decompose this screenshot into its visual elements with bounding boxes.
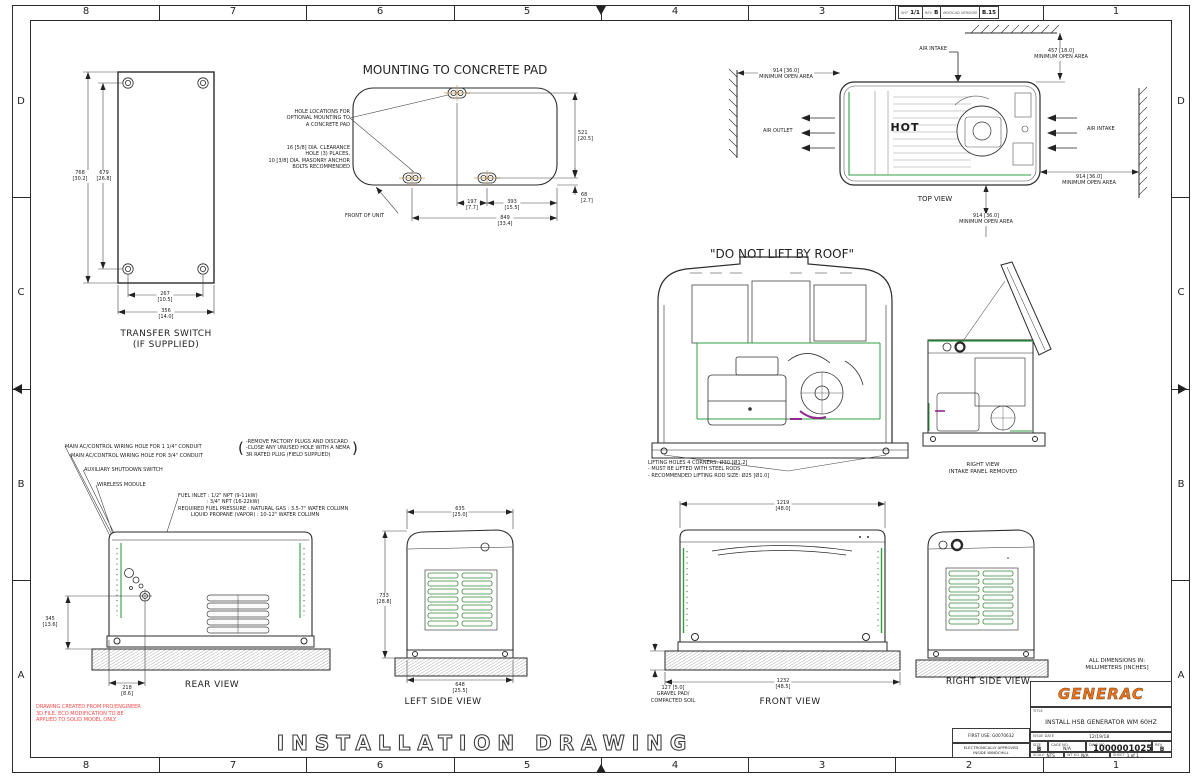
- plug-note-group: ( -REMOVE FACTORY PLUGS AND DISCARD -CLO…: [238, 439, 358, 458]
- all-dimensions-note: ALL DIMENSIONS IN: MILLIMETERS [INCHES]: [1085, 658, 1148, 672]
- issue-date-cell: ISSUE DATE 12/19/18: [1030, 732, 1172, 741]
- zone-number: 5: [524, 761, 530, 771]
- scale-label: SCALE: [1033, 753, 1045, 757]
- interior-panels: [692, 281, 866, 343]
- zone-number: 4: [672, 761, 678, 771]
- center-mark-bottom: [596, 764, 606, 773]
- dim-218: 218 [8.6]: [120, 685, 134, 698]
- center-mark-top: [596, 6, 606, 15]
- logo-cell: GENERAC: [1030, 681, 1172, 707]
- zone-letter: C: [1178, 288, 1185, 298]
- zone-letter: C: [18, 288, 25, 298]
- approved-box: ELECTRONICALLY APPROVED INSIDE WINDCHILL: [952, 743, 1030, 758]
- housing: [680, 530, 885, 642]
- lid-support: [963, 281, 1005, 341]
- zone-letter: D: [1177, 97, 1185, 107]
- sheet-value: 1 of 1: [1127, 753, 1139, 758]
- rev-strip-sheet: SHT1/1: [899, 7, 923, 18]
- zone-number: 3: [819, 7, 825, 17]
- gravel-pad: [665, 651, 900, 670]
- rev-strip-version-label: MODCAD VERSION: [941, 7, 980, 18]
- version-value: B.15: [982, 10, 996, 16]
- zone-tick: [895, 758, 896, 773]
- clearance-hole-callout: 16 [5/8] DIA. CLEARANCE HOLE (3) PLACES,…: [268, 145, 350, 170]
- air-intake-right-label: AIR INTAKE: [1087, 126, 1115, 132]
- zone-letter: A: [18, 671, 25, 681]
- zone-letter: D: [17, 97, 25, 107]
- zone-tick: [159, 5, 160, 20]
- left-side-view-label: LEFT SIDE VIEW: [405, 697, 482, 708]
- gravel-pad-note: 127 [5.0] GRAVEL PAD/ COMPACTED SOIL: [651, 685, 695, 704]
- right-view-open-label: RIGHT VIEW INTAKE PANEL REMOVED: [949, 462, 1017, 476]
- left-side-view-drawing: [370, 503, 535, 703]
- size-cell: SIZE B: [1030, 741, 1048, 752]
- transfer-switch-drawing: [55, 65, 230, 335]
- zone-tick: [159, 758, 160, 773]
- first-use-box: FIRST USE: G0070632: [952, 728, 1030, 743]
- paren-close: ): [352, 441, 358, 456]
- zone-tick: [12, 580, 30, 581]
- transfer-switch-label: TRANSFER SWITCH (IF SUPPLIED): [120, 329, 211, 352]
- min-open-457: 457 [18.0] MINIMUM OPEN AREA: [1033, 48, 1089, 61]
- zone-tick: [1171, 197, 1189, 198]
- base-rail: [407, 650, 513, 658]
- lift-view-drawing: [640, 243, 920, 488]
- zone-number: 3: [819, 761, 825, 771]
- gravel-pad: [92, 649, 330, 670]
- drawing-title: INSTALL HSB GENERATOR WM 60HZ: [1031, 719, 1171, 726]
- dwg-cell: DWG NO. 10000010258: [1086, 741, 1152, 752]
- zone-number: 8: [83, 7, 89, 17]
- right-view-open-drawing: [915, 253, 1060, 468]
- zone-letter: A: [1178, 671, 1185, 681]
- zone-tick: [1043, 5, 1044, 20]
- zone-tick: [306, 758, 307, 773]
- version-label: MODCAD VERSION: [943, 11, 977, 15]
- plug-note: -REMOVE FACTORY PLUGS AND DISCARD -CLOSE…: [246, 439, 350, 458]
- front-view-drawing: [638, 493, 913, 708]
- installation-drawing-title: INSTALLATION DRAWING: [277, 731, 694, 755]
- base-rail: [652, 443, 908, 458]
- min-open-914-bottom: 914 [36.0] MINIMUM OPEN AREA: [958, 213, 1014, 226]
- base-rail: [107, 636, 314, 647]
- zone-tick: [895, 5, 896, 20]
- dim-635: 635 [25.0]: [451, 506, 468, 519]
- weight-label: WT KG: [1067, 753, 1079, 757]
- base-rail: [928, 650, 1034, 658]
- zone-letter: B: [18, 480, 25, 490]
- generator-top-view: [840, 82, 1040, 185]
- base-rail: [923, 433, 1045, 446]
- rev-strip-version: B.15: [980, 7, 998, 18]
- zone-number: 1: [1113, 7, 1119, 17]
- zone-number: 2: [966, 761, 972, 771]
- gravel-pad: [916, 660, 1048, 677]
- zone-number: 4: [672, 7, 678, 17]
- dim-356: 356 [14.0]: [157, 308, 174, 321]
- sht-label: SHT: [901, 11, 908, 15]
- rear-vent: [207, 595, 269, 633]
- generac-logo: GENERAC: [1058, 685, 1144, 703]
- title-cell: TITLE INSTALL HSB GENERATOR WM 60HZ: [1030, 707, 1172, 732]
- callout-aux-switch: AUXILIARY SHUTDOWN SWITCH: [84, 467, 163, 473]
- zone-tick: [454, 758, 455, 773]
- zone-number: 5: [524, 7, 530, 17]
- zone-number: 7: [230, 761, 236, 771]
- zone-tick: [748, 5, 749, 20]
- right-side-view-label: RIGHT SIDE VIEW: [946, 677, 1030, 688]
- title-label: TITLE: [1033, 709, 1043, 713]
- dim-521: 521 [20.5]: [578, 130, 593, 143]
- wall-top: [965, 25, 1059, 33]
- zone-number: 7: [230, 7, 236, 17]
- weight-value: N/A: [1081, 753, 1088, 758]
- dim-1232: 1232 [48.5]: [774, 678, 791, 691]
- center-mark-right: [1178, 384, 1187, 394]
- hot-label: HOT: [890, 121, 919, 135]
- rev-label: REV: [925, 11, 932, 15]
- hole-locations-callout: HOLE LOCATIONS FOR OPTIONAL MOUNTING TO …: [287, 109, 350, 128]
- callout-wireless-module: WIRELESS MODULE: [97, 482, 146, 488]
- size-cage-dwg-rev-row: SIZE B CAGE NO. N/A DWG NO. 10000010258 …: [1030, 741, 1172, 752]
- zone-tick: [306, 5, 307, 20]
- air-outlet-label: AIR OUTLET: [763, 128, 793, 134]
- top-view-label: TOP VIEW: [918, 195, 952, 204]
- scale-cell: SCALE NTS: [1030, 752, 1064, 758]
- zone-letter: B: [1178, 480, 1185, 490]
- zone-tick: [1171, 580, 1189, 581]
- min-open-914-right: 914 [36.0] MINIMUM OPEN AREA: [1061, 174, 1117, 187]
- callout-conduit-34: MAIN AC/CONTROL WIRING HOLE FOR 3/4" CON…: [71, 453, 203, 459]
- dim-197: 197 [7.7]: [465, 199, 479, 212]
- paren-open: (: [238, 441, 244, 456]
- revision-strip: SHT1/1 REVB MODCAD VERSION B.15: [898, 6, 999, 19]
- fuel-inlet-note: FUEL INLET : 1/2" NPT (9-11kW) : 3/4" NP…: [178, 493, 348, 518]
- dim-679: 679 [26.8]: [95, 170, 112, 183]
- weight-cell: WT KG N/A: [1064, 752, 1110, 758]
- cage-cell: CAGE NO. N/A: [1048, 741, 1086, 752]
- dim-768: 768 [30.2]: [71, 170, 88, 183]
- right-side-view-drawing: [903, 503, 1068, 703]
- dim-267: 267 [10.5]: [156, 291, 173, 304]
- lifting-holes-note: LIFTING HOLES 4 CORNERS: Ø30 [Ø1.2] - MU…: [648, 460, 769, 479]
- purple-accents: [790, 411, 826, 419]
- zone-tick: [454, 5, 455, 20]
- scale-wt-sheet-row: SCALE NTS WT KG N/A SHEET 1 of 1: [1030, 752, 1172, 758]
- first-use-text: FIRST USE: G0070632: [968, 733, 1014, 738]
- wall-right: [1139, 87, 1147, 198]
- min-open-914-left: 914 [36.0] MINIMUM OPEN AREA: [758, 68, 814, 81]
- front-view-label: FRONT VIEW: [759, 697, 820, 708]
- zone-number: 6: [377, 761, 383, 771]
- gravel-pad: [395, 658, 527, 676]
- dim-733: 733 [28.8]: [375, 593, 392, 606]
- callout-conduit-114: MAIN AC/CONTROL WIRING HOLE FOR 1 1/4" C…: [65, 444, 202, 450]
- sheet-cell: SHEET 1 of 1: [1110, 752, 1172, 758]
- zone-tick: [12, 197, 30, 198]
- dim-345: 345 [13.6]: [41, 616, 58, 629]
- air-intake-top-label: AIR INTAKE: [919, 46, 947, 52]
- zone-number: 8: [83, 761, 89, 771]
- rev-value: B: [934, 10, 938, 16]
- zone-tick: [748, 758, 749, 773]
- green-frame: [697, 343, 880, 419]
- front-of-unit-label: FRONT OF UNIT: [345, 213, 384, 219]
- rear-view-label: REAR VIEW: [185, 680, 239, 691]
- dim-648: 648 [25.5]: [451, 682, 468, 695]
- housing: [928, 340, 1033, 433]
- sheet-label: SHEET: [1113, 753, 1125, 757]
- issue-date-label: ISSUE DATE: [1033, 734, 1054, 738]
- engine-assembly: [708, 353, 863, 425]
- dim-393: 393 [15.5]: [503, 199, 520, 212]
- dim-68: 68 [2.7]: [581, 192, 593, 205]
- scale-value: NTS: [1047, 753, 1055, 758]
- red-cad-note: DRAWING CREATED FROM PRO/ENGINEER 3D FIL…: [36, 704, 141, 724]
- rev-strip-rev: REVB: [923, 7, 941, 18]
- issue-date-value: 12/19/18: [1089, 735, 1109, 740]
- dim-1219: 1219 [48.0]: [774, 500, 791, 513]
- center-mark-left: [13, 384, 22, 394]
- drawing-sheet: 8 7 6 5 4 3 2 1 8 7 6 5 4 3 2 1 D C B A …: [0, 0, 1200, 778]
- wall-left: [729, 69, 737, 158]
- sht-value: 1/1: [910, 10, 920, 16]
- dim-849: 849 [33.4]: [496, 215, 513, 228]
- rev-cell: REV B: [1152, 741, 1172, 752]
- approved-text: ELECTRONICALLY APPROVED INSIDE WINDCHILL: [964, 746, 1019, 756]
- zone-number: 6: [377, 7, 383, 17]
- zone-number: 1: [1113, 761, 1119, 771]
- zone-tick: [1043, 758, 1044, 773]
